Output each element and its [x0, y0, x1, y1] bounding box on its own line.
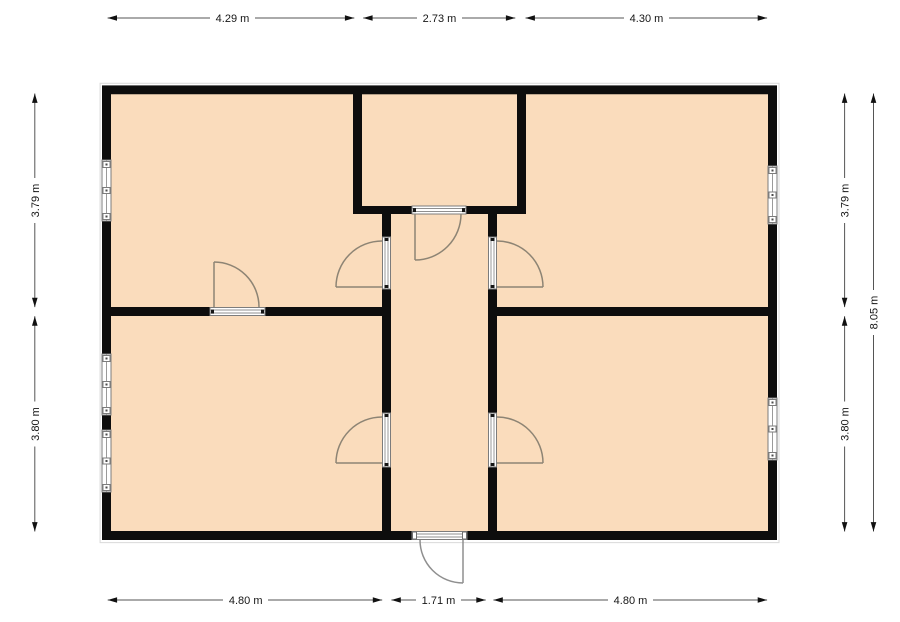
svg-text:1.71 m: 1.71 m	[422, 595, 456, 607]
svg-text:3.80 m: 3.80 m	[840, 407, 852, 441]
svg-text:4.29 m: 4.29 m	[216, 13, 250, 25]
svg-text:2.73 m: 2.73 m	[423, 13, 457, 25]
svg-text:4.80 m: 4.80 m	[614, 595, 648, 607]
svg-text:3.79 m: 3.79 m	[30, 184, 42, 218]
svg-text:3.79 m: 3.79 m	[840, 184, 852, 218]
svg-text:8.05 m: 8.05 m	[869, 296, 881, 330]
svg-text:3.80 m: 3.80 m	[30, 407, 42, 441]
svg-text:4.80 m: 4.80 m	[229, 595, 263, 607]
svg-text:4.30 m: 4.30 m	[630, 13, 664, 25]
